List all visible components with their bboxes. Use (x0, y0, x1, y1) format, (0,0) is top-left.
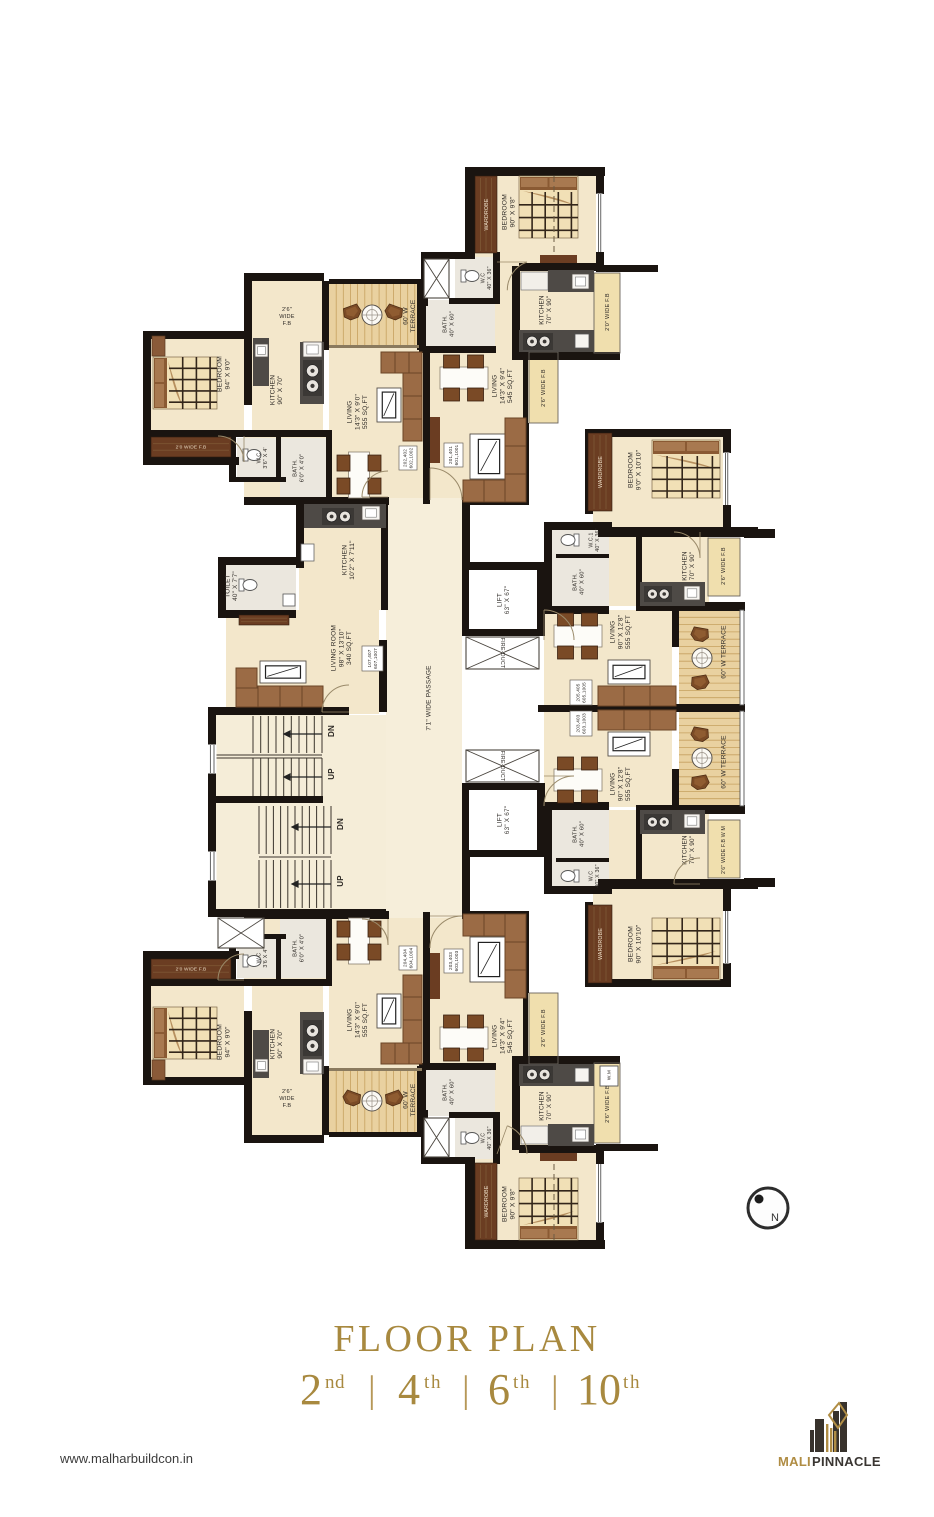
svg-text:10'2" X 7'11": 10'2" X 7'11" (349, 540, 356, 580)
svg-text:70" X 90": 70" X 90" (689, 552, 696, 580)
svg-text:340 SQ.FT: 340 SQ.FT (346, 631, 353, 665)
svg-text:6'0" X 4'0": 6'0" X 4'0" (300, 934, 306, 963)
svg-text:t: t (623, 1372, 629, 1393)
svg-text:2'6" WIDE F.B W M: 2'6" WIDE F.B W M (721, 826, 727, 874)
svg-text:60' W: 60' W (402, 307, 409, 325)
svg-text:|: | (551, 1369, 559, 1411)
svg-text:90" X 10'10": 90" X 10'10" (635, 924, 642, 963)
svg-text:14'3" X 9'4": 14'3" X 9'4" (499, 1018, 506, 1054)
svg-text:W.C: W.C (257, 953, 263, 964)
svg-text:WARDROBE: WARDROBE (598, 456, 604, 488)
svg-text:40" X 60": 40" X 60" (450, 311, 456, 337)
svg-text:40" X 36": 40" X 36" (595, 864, 601, 887)
svg-text:90" X 9'8": 90" X 9'8" (509, 196, 516, 228)
svg-text:N: N (771, 1212, 779, 1224)
svg-text:h: h (520, 1372, 530, 1393)
svg-text:LIVING: LIVING (492, 1025, 499, 1048)
svg-text:MALI: MALI (778, 1454, 811, 1469)
svg-text:2'0" WIDE F.B: 2'0" WIDE F.B (605, 293, 611, 331)
svg-text:604,1004: 604,1004 (409, 947, 414, 968)
svg-text:t: t (513, 1372, 519, 1393)
svg-text:h: h (431, 1372, 441, 1393)
svg-text:WIDE: WIDE (279, 1096, 294, 1102)
svg-text:F.B: F.B (283, 1103, 292, 1109)
svg-text:60' W: 60' W (402, 1091, 409, 1109)
svg-text:603,1003: 603,1003 (582, 713, 587, 734)
svg-text:W.C: W.C (257, 453, 263, 464)
svg-text:545 SQ.FT: 545 SQ.FT (507, 369, 514, 403)
svg-text:63" X 67": 63" X 67" (504, 806, 511, 834)
svg-text:DN: DN (336, 818, 345, 830)
svg-text:607,1007: 607,1007 (373, 648, 378, 669)
svg-text:6'0" X 4'0": 6'0" X 4'0" (300, 454, 306, 483)
svg-text:40" X 36": 40" X 36" (595, 528, 601, 551)
svg-text:UP: UP (336, 875, 345, 887)
svg-text:94" X 9'0": 94" X 9'0" (224, 1026, 231, 1058)
svg-text:2'6": 2'6" (282, 307, 292, 313)
svg-text:603,1003: 603,1003 (454, 950, 459, 971)
svg-text:t: t (424, 1372, 430, 1393)
svg-text:90" X 70": 90" X 70" (277, 1029, 284, 1059)
svg-text:40" X 60": 40" X 60" (450, 1079, 456, 1105)
svg-text:40" X 60": 40" X 60" (580, 821, 586, 847)
svg-text:W.C.1: W.C.1 (589, 532, 595, 547)
svg-text:WARDROBE: WARDROBE (484, 1185, 490, 1217)
svg-text:605,1005: 605,1005 (582, 682, 587, 703)
svg-text:2'6" WIDE F.B: 2'6" WIDE F.B (541, 369, 547, 407)
svg-text:W.C: W.C (589, 871, 595, 881)
svg-text:7'1" WIDE PASSAGE: 7'1" WIDE PASSAGE (425, 665, 432, 731)
svg-text:90" X 12'8": 90" X 12'8" (617, 614, 624, 649)
svg-text:LIFT: LIFT (496, 593, 503, 607)
svg-text:60" W TERRACE: 60" W TERRACE (720, 735, 727, 789)
svg-text:90" X 9'8": 90" X 9'8" (509, 1188, 516, 1220)
svg-text:KITCHEN: KITCHEN (269, 375, 276, 405)
svg-text:FIRE-DUCT: FIRE-DUCT (499, 751, 505, 782)
svg-text:W.M: W.M (607, 1070, 613, 1080)
svg-text:PINNACLE: PINNACLE (812, 1454, 881, 1469)
svg-text:KITCHEN: KITCHEN (269, 1029, 276, 1059)
svg-text:BATH.: BATH. (443, 1083, 449, 1101)
svg-text:2'0 WIDE F.B: 2'0 WIDE F.B (176, 967, 207, 973)
svg-text:KITCHEN: KITCHEN (538, 1091, 545, 1121)
svg-text:14'3" X 9'4": 14'3" X 9'4" (499, 368, 506, 404)
svg-text:203,403: 203,403 (576, 714, 581, 732)
svg-text:203,403: 203,403 (448, 952, 453, 970)
svg-text:BATH.: BATH. (293, 939, 299, 957)
svg-text:h: h (630, 1372, 640, 1393)
svg-text:555 SQ.FT: 555 SQ.FT (625, 767, 632, 801)
svg-text:DN: DN (327, 725, 336, 737)
svg-text:90" X 70": 90" X 70" (277, 375, 284, 405)
svg-text:n: n (325, 1372, 335, 1393)
svg-text:BEDROOM: BEDROOM (627, 452, 634, 488)
svg-text:FLOOR PLAN: FLOOR PLAN (333, 1318, 600, 1360)
svg-text:BEDROOM: BEDROOM (216, 356, 223, 392)
svg-text:40" X 36": 40" X 36" (487, 1126, 493, 1149)
svg-text:555 SQ.FT: 555 SQ.FT (625, 615, 632, 649)
svg-text:d: d (335, 1372, 345, 1393)
svg-text:602,1002: 602,1002 (409, 447, 414, 468)
svg-text:94" X 9'0": 94" X 9'0" (224, 358, 231, 390)
svg-text:LIVING: LIVING (492, 375, 499, 398)
svg-text:202,402: 202,402 (403, 449, 408, 467)
svg-text:3'6" X 4': 3'6" X 4' (263, 447, 269, 468)
svg-text:6: 6 (488, 1365, 510, 1414)
svg-text:BATH.: BATH. (443, 315, 449, 333)
svg-text:|: | (368, 1369, 376, 1411)
svg-text:|: | (462, 1369, 470, 1411)
svg-text:2'6" WIDE F.B: 2'6" WIDE F.B (541, 1009, 547, 1047)
svg-text:BEDROOM: BEDROOM (627, 926, 634, 962)
svg-text:2: 2 (300, 1365, 322, 1414)
svg-text:2'6" WIDE F.B: 2'6" WIDE F.B (721, 547, 727, 585)
svg-text:40" X 36": 40" X 36" (487, 266, 493, 289)
svg-text:70" X 90": 70" X 90" (546, 296, 553, 324)
svg-text:40" X 7'7": 40" X 7'7" (232, 571, 239, 601)
svg-text:FIRE-DUCT: FIRE-DUCT (499, 638, 505, 669)
svg-text:BEDROOM: BEDROOM (501, 194, 508, 230)
svg-text:2'6" WIDE F.B: 2'6" WIDE F.B (605, 1085, 611, 1123)
svg-text:BATH.: BATH. (573, 573, 579, 591)
svg-text:10: 10 (577, 1365, 621, 1414)
svg-text:TOILET: TOILET (224, 574, 231, 597)
svg-text:14'3" X 9'0": 14'3" X 9'0" (354, 394, 361, 430)
svg-text:201,401: 201,401 (448, 446, 453, 464)
svg-text:KITCHEN: KITCHEN (681, 551, 688, 581)
svg-text:LIVING: LIVING (610, 621, 617, 644)
svg-text:90" X 12'8": 90" X 12'8" (617, 766, 624, 801)
svg-text:107,407: 107,407 (367, 649, 372, 667)
svg-text:KITCHEN: KITCHEN (341, 545, 348, 575)
svg-text:204,404: 204,404 (403, 949, 408, 967)
svg-text:UP: UP (327, 768, 336, 780)
svg-text:www.malharbuildcon.in: www.malharbuildcon.in (59, 1451, 193, 1466)
svg-text:BATH.: BATH. (293, 459, 299, 477)
svg-text:40" X 60": 40" X 60" (580, 569, 586, 595)
svg-text:WARDROBE: WARDROBE (598, 928, 604, 960)
svg-text:KITCHEN: KITCHEN (681, 835, 688, 865)
svg-text:60" W TERRACE: 60" W TERRACE (720, 625, 727, 679)
svg-text:9'0" X 10'10": 9'0" X 10'10" (635, 449, 642, 490)
svg-text:205,405: 205,405 (576, 683, 581, 701)
svg-text:601,1001: 601,1001 (454, 444, 459, 465)
svg-text:98" X 13'10": 98" X 13'10" (338, 628, 345, 667)
svg-text:TERRACE: TERRACE (410, 1083, 417, 1116)
svg-text:LIVING: LIVING (610, 773, 617, 796)
svg-text:TERRACE: TERRACE (410, 299, 417, 332)
svg-text:W.C: W.C (481, 1133, 487, 1143)
svg-text:W.C: W.C (481, 273, 487, 283)
svg-text:555 SQ.FT: 555 SQ.FT (362, 1003, 369, 1037)
svg-text:2'0 WIDE F.B: 2'0 WIDE F.B (176, 445, 207, 451)
svg-text:4: 4 (398, 1365, 420, 1414)
svg-text:70" X 90": 70" X 90" (546, 1092, 553, 1120)
svg-text:LIVING: LIVING (347, 401, 354, 424)
svg-text:2'6": 2'6" (282, 1089, 292, 1095)
svg-text:63" X 67": 63" X 67" (504, 586, 511, 614)
svg-text:BATH.: BATH. (573, 825, 579, 843)
svg-text:LIFT: LIFT (496, 813, 503, 827)
svg-text:555 SQ.FT: 555 SQ.FT (362, 395, 369, 429)
svg-text:14'3" X 9'0": 14'3" X 9'0" (354, 1002, 361, 1038)
svg-text:LIVING: LIVING (347, 1009, 354, 1032)
svg-text:WARDROBE: WARDROBE (484, 198, 490, 230)
svg-text:KITCHEN: KITCHEN (538, 295, 545, 325)
svg-text:BEDROOM: BEDROOM (501, 1186, 508, 1222)
svg-text:LIVING ROOM: LIVING ROOM (331, 625, 338, 671)
svg-text:F.B: F.B (283, 321, 292, 327)
svg-text:545 SQ.FT: 545 SQ.FT (507, 1019, 514, 1053)
svg-text:BEDROOM: BEDROOM (216, 1024, 223, 1060)
svg-text:WIDE: WIDE (279, 314, 294, 320)
svg-text:3'6 X 4': 3'6 X 4' (263, 948, 269, 967)
